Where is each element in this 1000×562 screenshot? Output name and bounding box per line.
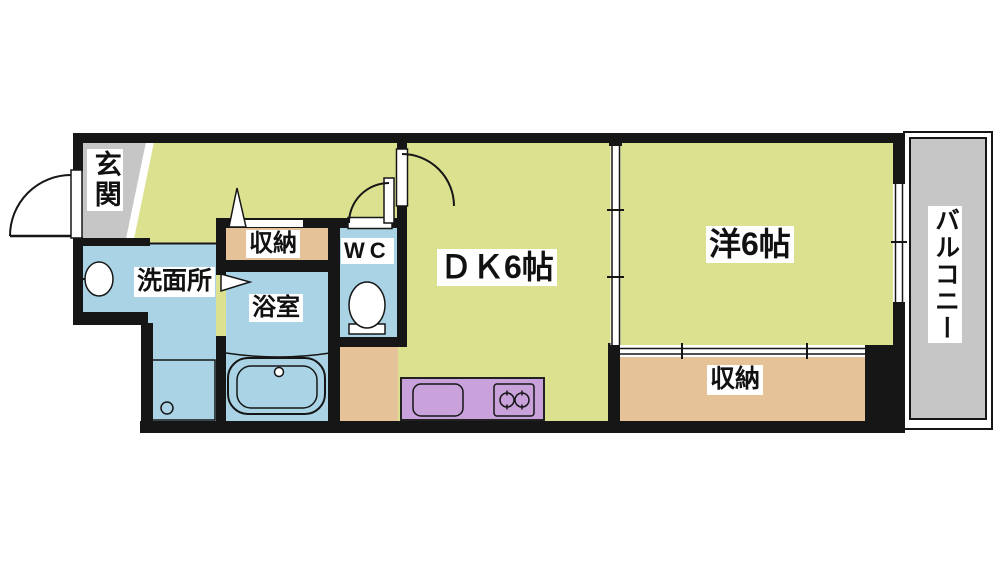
room-label-balcony: バルコニー xyxy=(928,206,962,343)
dk-door xyxy=(397,149,455,206)
washbasin xyxy=(76,262,113,296)
storage-door-marker xyxy=(229,188,246,227)
room-label-wc: WC xyxy=(341,238,394,264)
wc-door xyxy=(348,178,394,229)
toilet xyxy=(349,282,385,334)
floor-plan: 玄関 洗面所 収納 WC 浴室 ＤＫ6帖 洋6帖 収納 バルコニー xyxy=(0,0,1000,562)
storage-sliding-door xyxy=(620,343,865,359)
room-label-genkan: 玄関 xyxy=(87,149,123,211)
washing-machine-pan xyxy=(152,360,215,420)
bathtub xyxy=(226,353,330,414)
dk-western-partition xyxy=(607,140,624,345)
room-label-western: 洋6帖 xyxy=(706,226,794,263)
room-label-dk: ＤＫ6帖 xyxy=(437,249,557,286)
room-label-storage-lower: 収納 xyxy=(707,365,763,395)
stove xyxy=(494,384,534,416)
kitchen-sink xyxy=(413,384,463,416)
room-label-washroom: 洗面所 xyxy=(134,267,215,297)
entrance-door xyxy=(10,170,82,238)
bathroom-door-marker xyxy=(221,274,250,291)
balcony-window xyxy=(891,184,907,302)
room-label-bathroom: 浴室 xyxy=(249,294,303,322)
room-label-storage-upper: 収納 xyxy=(246,230,300,258)
